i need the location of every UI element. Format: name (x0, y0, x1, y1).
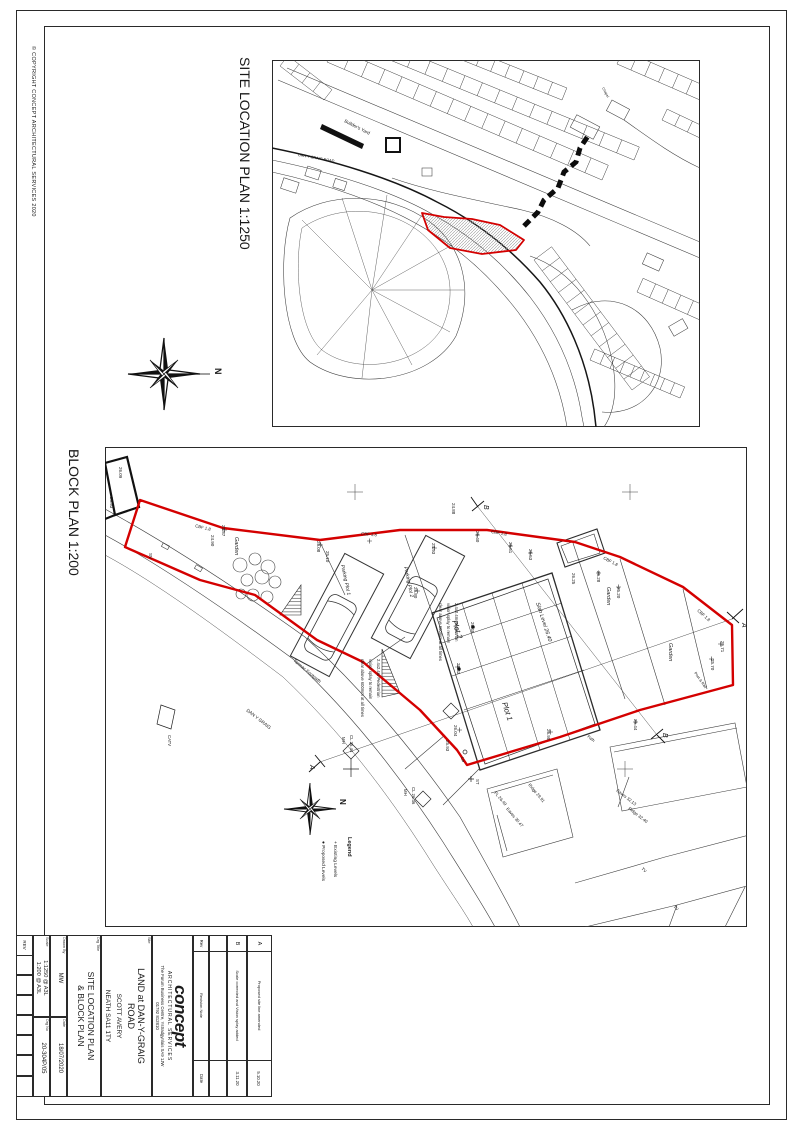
copyright-text: © COPYRIGHT CONCEPT ARCHITECTURAL SERVIC… (22, 46, 36, 261)
map-label: 25.93 (445, 740, 450, 752)
map-label: 25.44 (633, 719, 638, 731)
north-compass: N (118, 328, 230, 420)
map-label: 25.28 (596, 571, 601, 583)
map-label: Garden (605, 587, 611, 605)
rev-hdr-date: Date (196, 1062, 206, 1095)
rev-hdr-rev: Rev (195, 937, 207, 950)
map-label: 24.90 (210, 535, 215, 547)
map-label: 25.71 (720, 641, 725, 653)
map-label: 25.20 (616, 587, 621, 599)
map-label: 25.93 (109, 497, 114, 509)
map-label: LP (460, 757, 465, 762)
firm-phone: 01792 812810 (154, 938, 159, 1094)
drg-title-value: SITE LOCATION PLAN & BLOCK PLAN (73, 940, 97, 1092)
rev-b-note: Scale corrected and Vision splay added (229, 953, 246, 1058)
map-label: clear above 600mm at all times (438, 603, 443, 661)
block-plan-map: 26.0925.93SVCBF 1.824.8724.90Garden25.08… (105, 447, 747, 927)
rev-a-letter: A (250, 937, 268, 950)
rev-box (16, 1035, 33, 1055)
map-label: 25.70 (710, 659, 715, 671)
site-line2: ROAD (126, 940, 136, 1092)
compass-labels: N (213, 368, 223, 375)
map-label: vision splay to remain (368, 659, 373, 700)
rev-box (16, 1055, 33, 1076)
date-value: 18/07/2020 (55, 1021, 64, 1095)
map-label: SV (148, 553, 153, 559)
scale-value: 1:1250 @ A3L 1:200 @ A3L (35, 941, 48, 1015)
drawnby-value: MW (55, 941, 64, 1015)
map-label: MH (341, 737, 346, 744)
map-label: A (740, 622, 747, 628)
map-label: B (482, 505, 489, 510)
map-label: 25.51 (508, 542, 513, 554)
rev-hdr-note: Revision Note (196, 953, 206, 1058)
map-label: 26.25 (571, 573, 576, 585)
map-label: 24.87 (221, 525, 226, 537)
map-label: CL 26.36 (411, 787, 416, 805)
drgno-value: 20-304P/05 (38, 1021, 47, 1095)
map-label: 24.93 (431, 543, 436, 555)
compass-star-icon (128, 338, 200, 410)
map-label: Garden (233, 537, 239, 555)
rev-box (16, 1076, 33, 1097)
map-label: Legend (346, 837, 352, 857)
map-label: + Existing Levels (332, 841, 338, 878)
site-town: NEATH SA11 1TY (104, 940, 111, 1092)
rev-strip-header: REV (18, 937, 31, 953)
site-line1: LAND at DAN-Y-GRAIG (136, 940, 146, 1092)
scale-line1: 1:1250 @ A3L (42, 941, 48, 1015)
rev-box (16, 995, 33, 1015)
map-label: 2.4x2.4m Pedestrian (376, 659, 381, 698)
drawing-sheet: © COPYRIGHT CONCEPT ARCHITECTURAL SERVIC… (0, 0, 800, 1132)
rev-col-empty (209, 935, 227, 1097)
rev-row-line2 (193, 1060, 272, 1061)
site-plan-title: SITE LOCATION PLAN 1:1250 (233, 57, 253, 262)
rev-a-note: Proposed site line amended (250, 953, 269, 1058)
map-label: 25.95 (546, 729, 551, 741)
logo-block: concept ARCHITECTURAL SERVICES The Forum… (153, 938, 191, 1094)
drg-title-line2: & BLOCK PLAN (75, 940, 85, 1092)
rev-box (16, 955, 33, 975)
map-label: 24.88 (451, 503, 456, 515)
map-label: N (338, 799, 347, 805)
map-label: 26.09 (118, 467, 123, 479)
rev-box (16, 1015, 33, 1035)
map-label: 25.10 (325, 551, 330, 563)
site-value: LAND at DAN-Y-GRAIG ROAD SCOTT AVERY NEA… (102, 940, 148, 1092)
block-plan-frame (106, 448, 747, 927)
map-label: ST (475, 779, 480, 785)
map-label: 26.45 (470, 622, 475, 634)
map-label: 25.08 (316, 541, 321, 553)
map-label: 26.04 (453, 725, 458, 737)
scale-line2: 1:200 @ A3L (35, 941, 41, 1015)
drg-title-line1: SITE LOCATION PLAN (85, 940, 95, 1092)
map-label: vision splay to remain (446, 603, 451, 644)
map-label: N (213, 368, 223, 375)
map-label: Garden (667, 643, 673, 661)
site-location-plan-map: Builder's YardDAN Y GRAIG ROADChapel (272, 60, 700, 427)
map-label: B (661, 733, 668, 738)
map-label: 26.43 (456, 663, 461, 675)
map-label: 2.4x2.4m Pedestrian (454, 603, 459, 642)
map-label: CATV (167, 735, 172, 746)
map-label: 25.40 (475, 531, 480, 543)
map-label: A (308, 764, 315, 770)
map-label: MH (403, 789, 408, 796)
rev-a-date: 5.10.20 (250, 1062, 266, 1095)
rev-box (16, 975, 33, 995)
rev-b-letter: B (229, 937, 245, 950)
block-plan-title: BLOCK PLAN 1:200 (62, 449, 82, 609)
firm-logo: concept (171, 938, 191, 1094)
map-label: CL 25.44 (349, 735, 354, 753)
firm-subtitle: ARCHITECTURAL SERVICES (165, 938, 171, 1094)
rev-row-line1 (193, 951, 272, 952)
site-client: SCOTT AVERY (114, 940, 121, 1092)
map-label: ● Proposed Levels (320, 841, 326, 882)
map-label: 25.53 (528, 549, 533, 561)
map-label: clear above 600mm at all times (360, 659, 365, 717)
rev-b-date: 3.11.20 (230, 1062, 244, 1095)
